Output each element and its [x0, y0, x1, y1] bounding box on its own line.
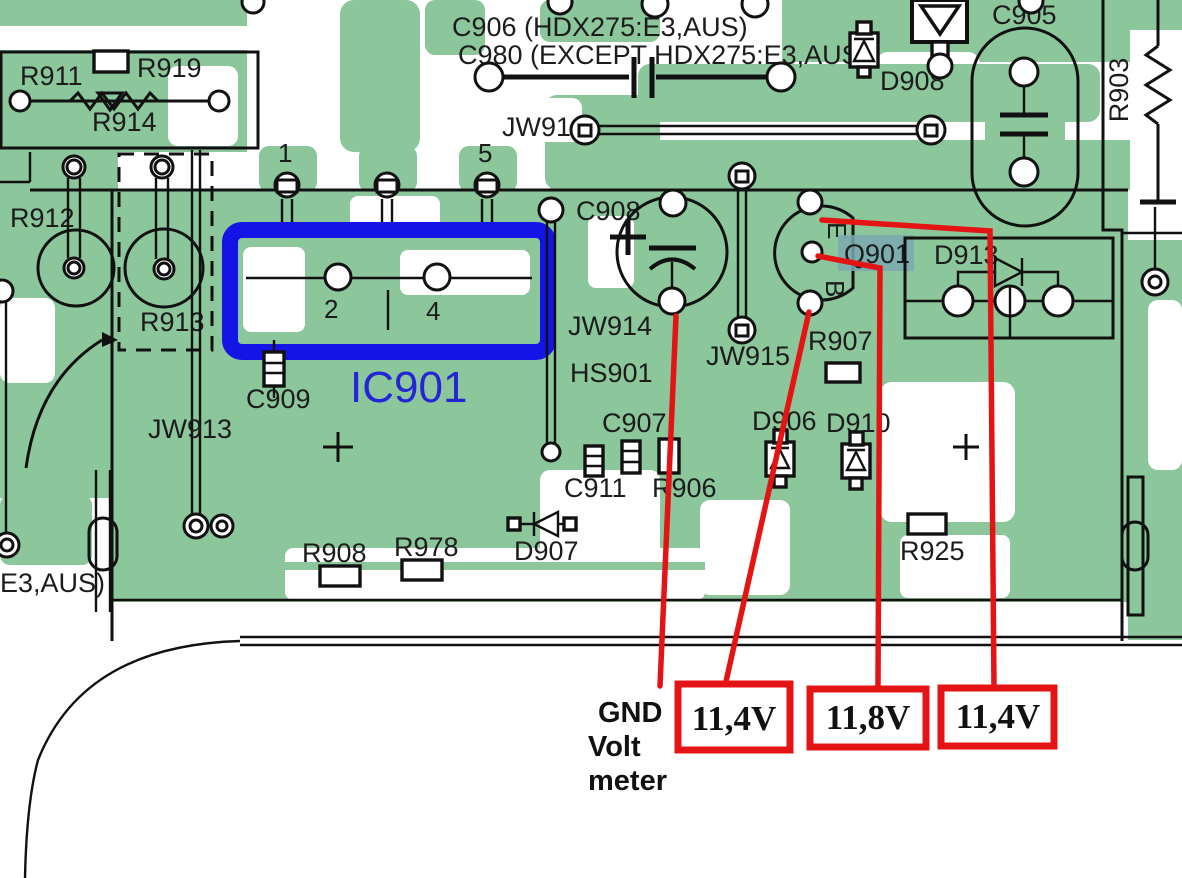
hs901-label: HS901	[570, 358, 653, 388]
r914-pad-right	[209, 91, 229, 111]
q901-base-label: B	[820, 280, 850, 297]
partial-left-note: E3,AUS)	[0, 568, 105, 598]
r978-label: R978	[394, 532, 459, 562]
pin5-label: 5	[478, 138, 492, 168]
r903-label: R903	[1104, 58, 1134, 123]
c980-note: C980 (EXCEPT HDX275:E3,AUS)	[458, 40, 869, 70]
c906-note: C906 (HDX275:E3,AUS)	[452, 12, 748, 42]
voltage3-value: 11,4V	[956, 697, 1041, 736]
pin2-label: 2	[324, 294, 338, 324]
c911-label: C911	[564, 473, 627, 503]
r914-label: R914	[92, 107, 157, 137]
c907-label: C907	[602, 408, 667, 438]
ic901-pin2-pad	[325, 264, 351, 290]
voltage1-value: 11,4V	[692, 699, 777, 738]
d907-diode: D907	[508, 512, 579, 566]
r914-pad-left	[10, 91, 30, 111]
voltage2-value: 11,8V	[826, 698, 911, 737]
r907-label: R907	[808, 326, 873, 356]
r925-label: R925	[900, 536, 965, 566]
gnd-label-line1: GND	[598, 697, 662, 729]
c909-label: C909	[246, 384, 311, 414]
pcb-layout-diagram: R911 R919 R914 R912 R913 JW913 1 5	[0, 0, 1182, 878]
jw913-label: JW913	[148, 414, 232, 444]
r913-label: R913	[140, 307, 205, 337]
jw915-label: JW915	[706, 341, 790, 371]
r908-label: R908	[302, 538, 367, 568]
r912-label: R912	[10, 203, 75, 233]
ic901-pin4-pad	[424, 264, 450, 290]
r903-zigzag	[1146, 46, 1170, 124]
d907-label: D907	[514, 536, 579, 566]
gnd-label-line3: meter	[588, 765, 667, 797]
r919-label: R919	[137, 53, 202, 83]
gnd-label-line2: Volt	[588, 731, 641, 763]
ic901-label: IC901	[350, 363, 467, 412]
pin1-label: 1	[278, 138, 292, 168]
r906-label: R906	[652, 473, 717, 503]
c908-label: C908	[576, 196, 641, 226]
r919-component	[94, 51, 128, 72]
pin4-label: 4	[426, 296, 440, 326]
jw914-label: JW914	[568, 311, 652, 341]
r911-label: R911	[20, 61, 83, 91]
